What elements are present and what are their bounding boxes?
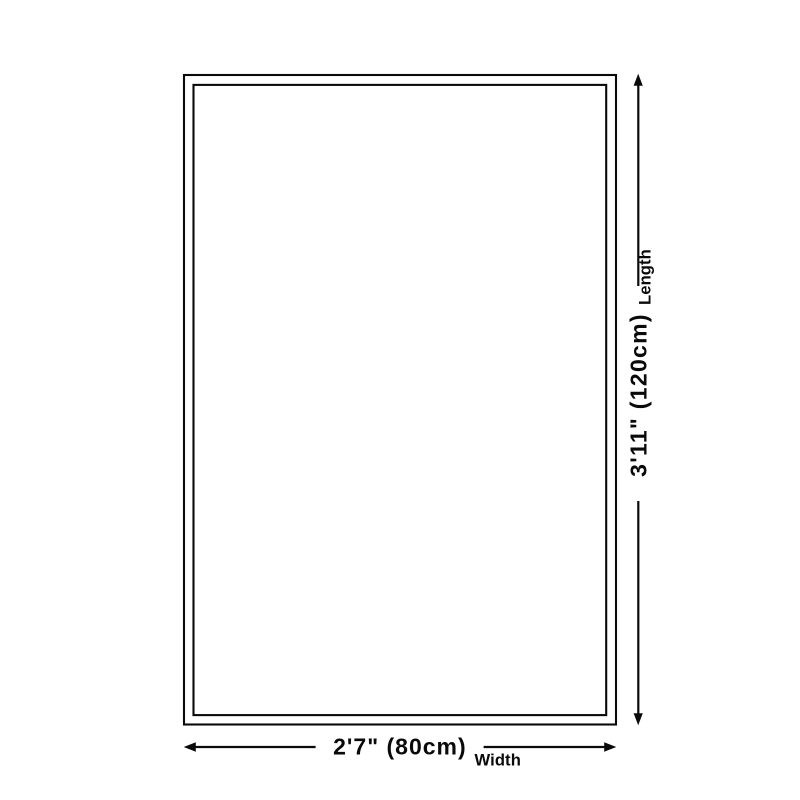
svg-text:Width: Width	[475, 750, 521, 769]
svg-text:2'7" (80cm): 2'7" (80cm)	[333, 733, 467, 759]
svg-text:Length: Length	[636, 249, 655, 305]
svg-text:3'11" (120cm): 3'11" (120cm)	[625, 313, 651, 477]
